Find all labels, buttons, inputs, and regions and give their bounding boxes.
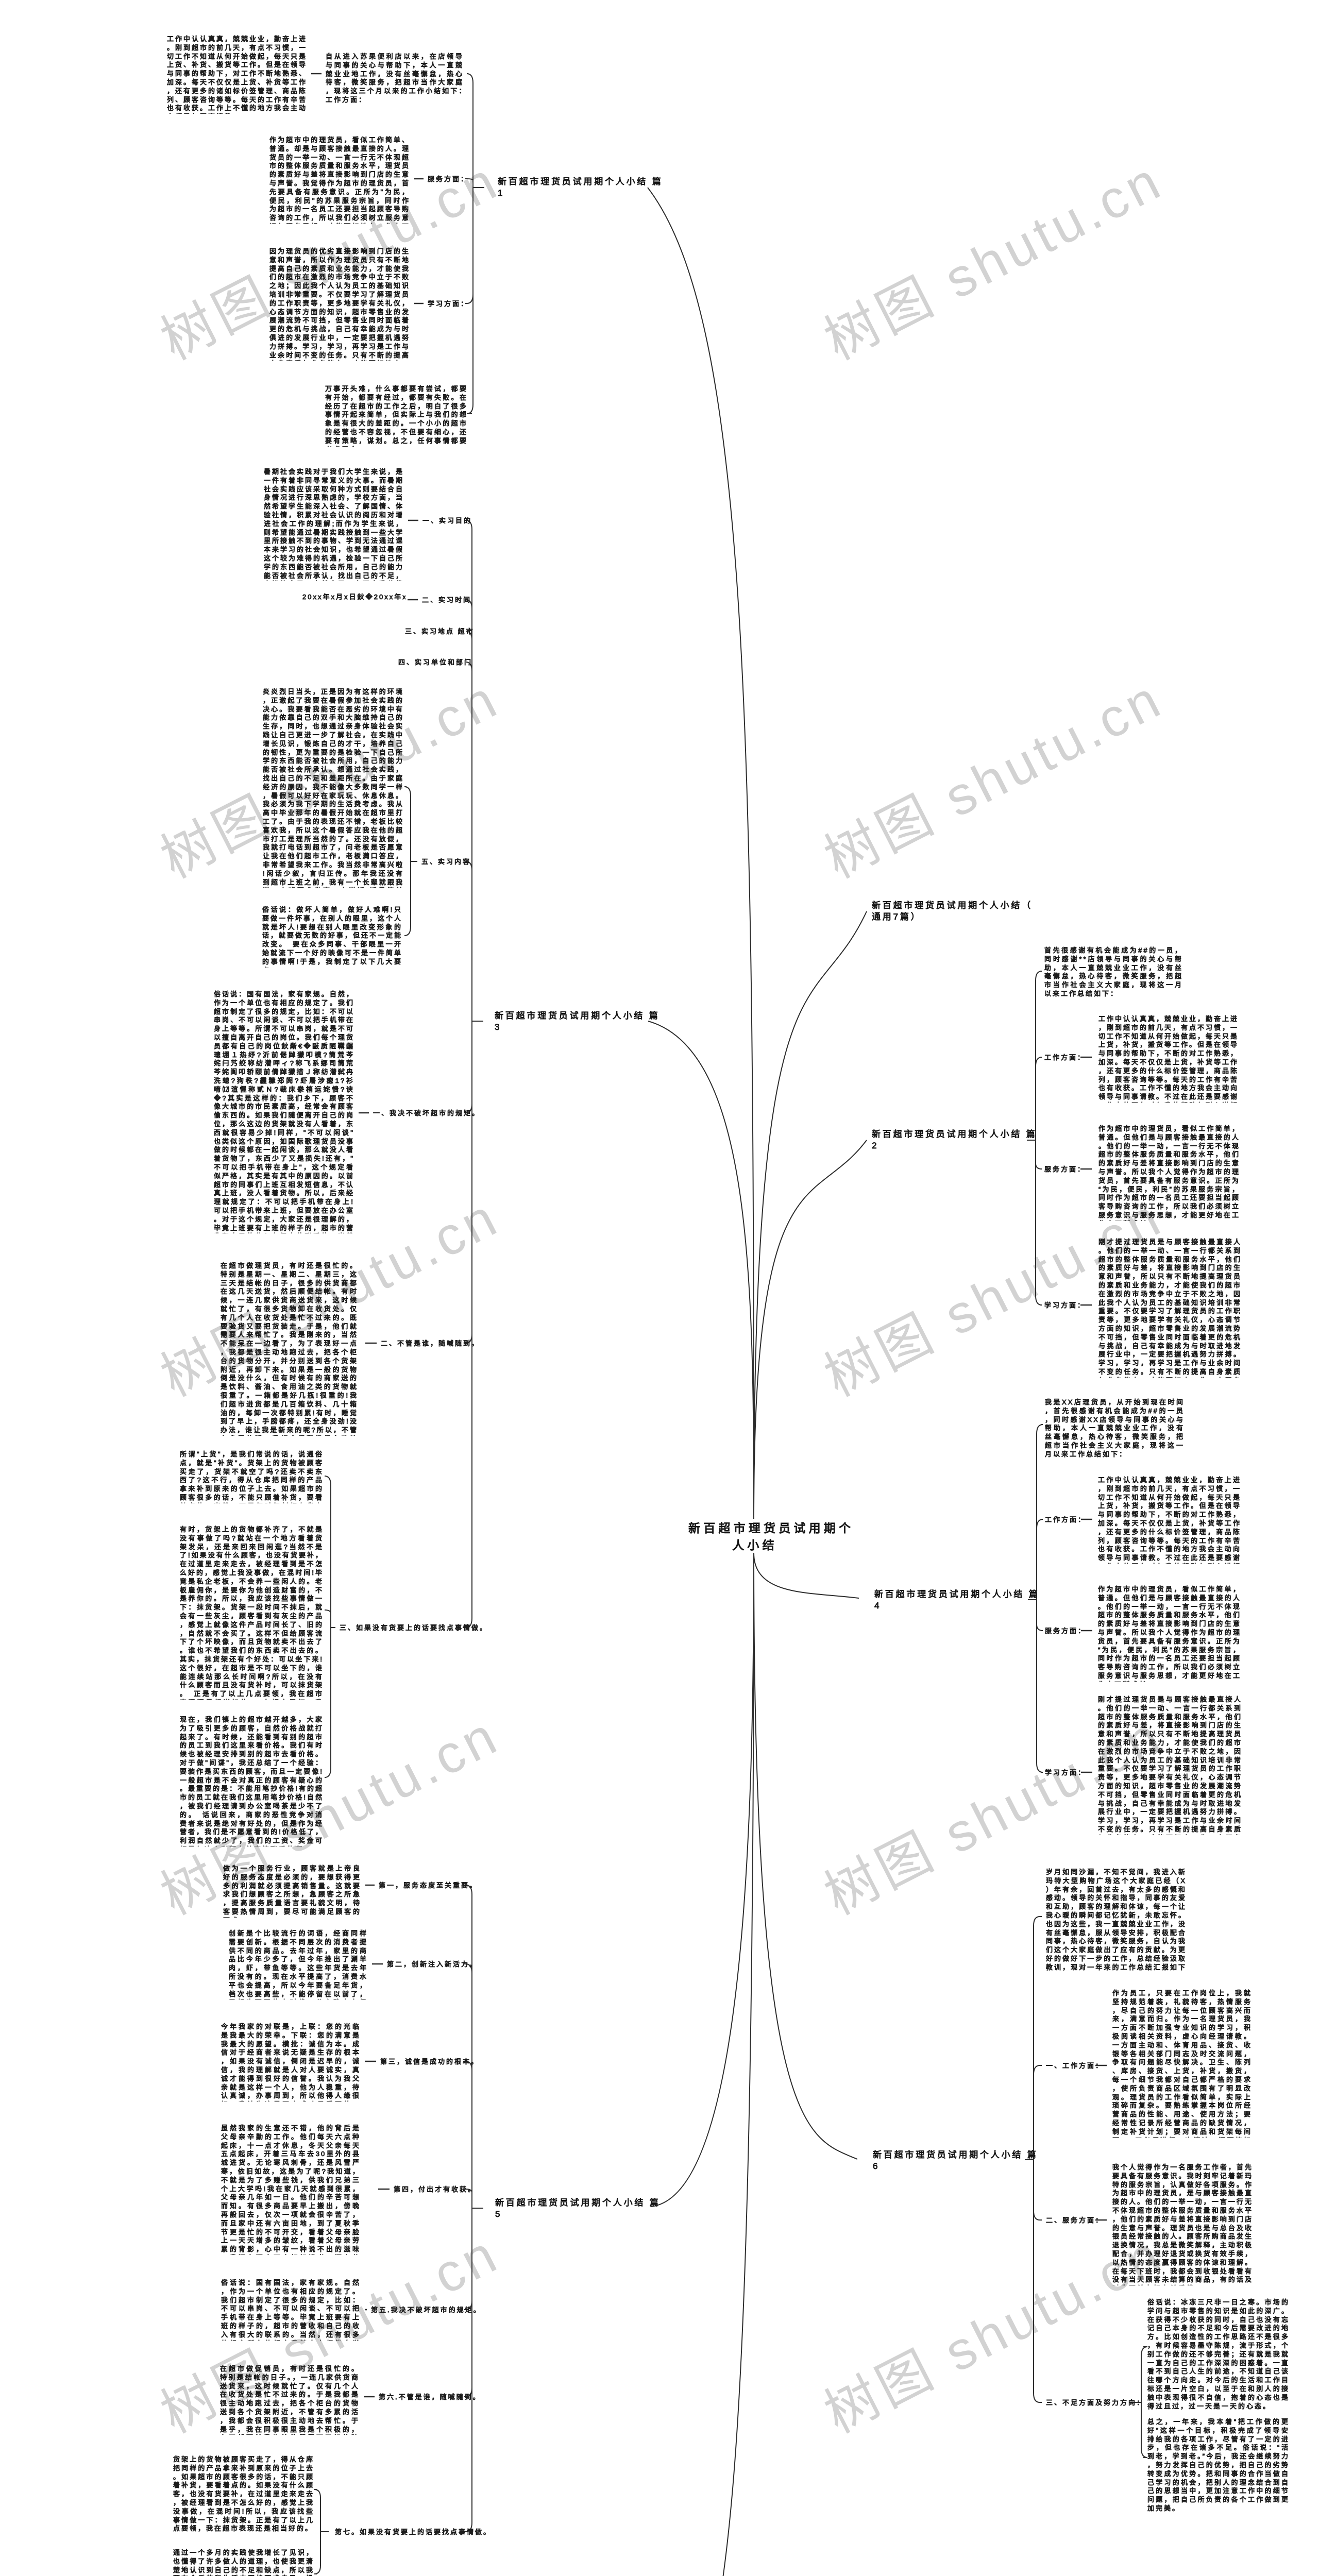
svg-text:树图 shutu.cn: 树图 shutu.cn <box>816 668 1172 889</box>
svg-text:树图 shutu.cn: 树图 shutu.cn <box>816 150 1172 371</box>
